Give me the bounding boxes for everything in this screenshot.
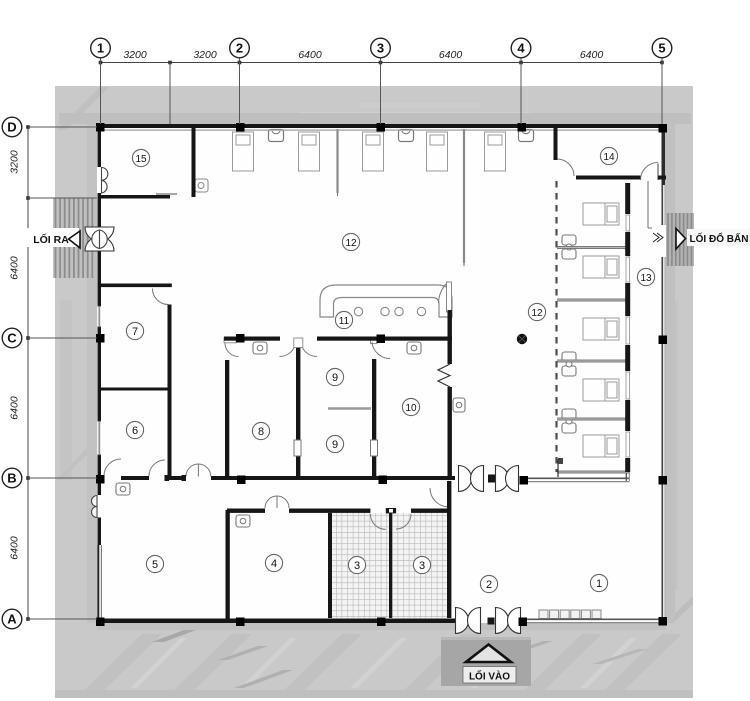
svg-text:6400: 6400: [9, 256, 21, 280]
svg-text:6400: 6400: [298, 49, 322, 61]
svg-text:13: 13: [640, 273, 652, 284]
svg-text:1: 1: [97, 41, 104, 56]
svg-text:3200: 3200: [193, 49, 217, 61]
svg-text:6400: 6400: [9, 396, 21, 420]
svg-text:6400: 6400: [439, 49, 463, 61]
svg-text:14: 14: [603, 152, 615, 163]
svg-text:LỐI ĐỔ BẤN: LỐI ĐỔ BẤN: [690, 231, 749, 245]
svg-text:4: 4: [271, 558, 277, 570]
svg-text:9: 9: [332, 439, 338, 451]
svg-text:6400: 6400: [580, 49, 604, 61]
svg-text:10: 10: [405, 403, 417, 414]
svg-text:6: 6: [132, 425, 138, 437]
svg-text:LỐI VÀO: LỐI VÀO: [469, 669, 510, 683]
svg-text:C: C: [7, 331, 17, 346]
svg-text:A: A: [7, 612, 17, 627]
svg-text:3200: 3200: [9, 150, 21, 174]
svg-text:2: 2: [486, 579, 492, 591]
svg-text:4: 4: [517, 41, 525, 56]
svg-text:5: 5: [152, 559, 158, 571]
svg-text:B: B: [7, 471, 16, 486]
svg-text:9: 9: [332, 372, 338, 384]
svg-text:15: 15: [135, 154, 147, 165]
svg-text:D: D: [7, 120, 16, 135]
svg-text:7: 7: [132, 326, 138, 338]
svg-text:1: 1: [596, 578, 602, 590]
svg-text:12: 12: [345, 238, 357, 249]
svg-text:8: 8: [258, 426, 264, 438]
svg-text:3: 3: [377, 41, 384, 56]
svg-text:2: 2: [236, 41, 243, 56]
svg-text:3: 3: [354, 560, 360, 572]
svg-text:11: 11: [339, 316, 350, 327]
svg-text:3200: 3200: [123, 49, 147, 61]
svg-text:6400: 6400: [9, 536, 21, 560]
svg-text:12: 12: [531, 308, 543, 319]
svg-text:3: 3: [419, 560, 425, 572]
svg-text:LỐI RA: LỐI RA: [33, 232, 69, 246]
svg-text:5: 5: [658, 41, 665, 56]
